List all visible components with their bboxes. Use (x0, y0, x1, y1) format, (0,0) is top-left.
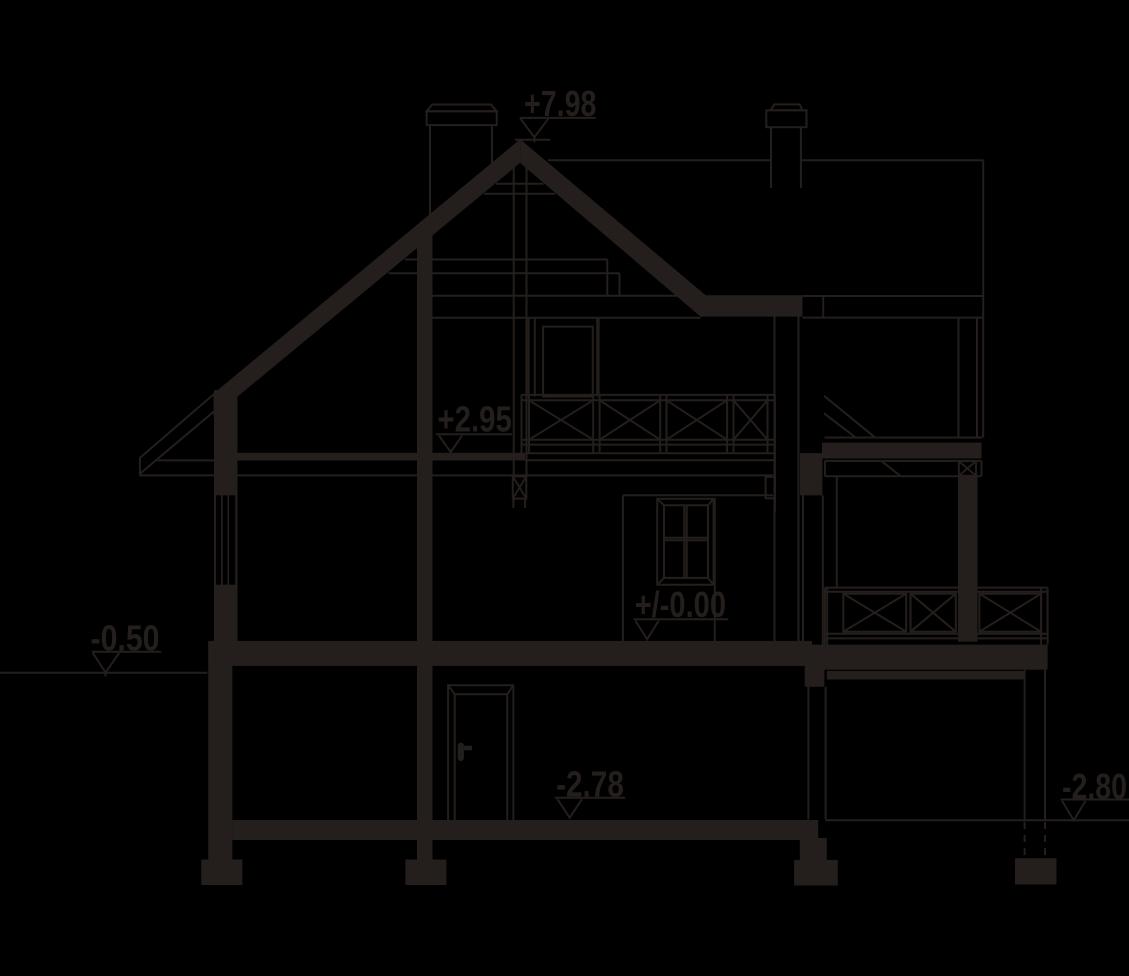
svg-text:-2.78: -2.78 (556, 764, 624, 805)
svg-text:-2.80: -2.80 (1062, 766, 1127, 807)
svg-text:+2.95: +2.95 (437, 399, 512, 440)
svg-text:-0.50: -0.50 (91, 617, 160, 658)
svg-text:+7.98: +7.98 (524, 83, 596, 124)
svg-text:+/-0.00: +/-0.00 (635, 584, 726, 625)
